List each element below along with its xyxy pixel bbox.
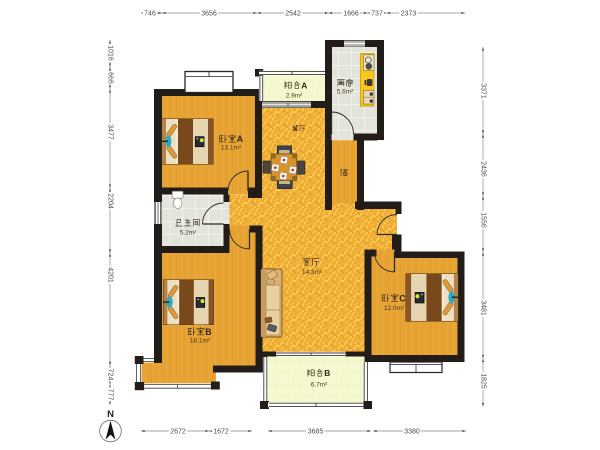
svg-text:3371: 3371 [480, 83, 487, 99]
svg-text:1672: 1672 [213, 428, 229, 435]
svg-text:5.2m²: 5.2m² [180, 230, 197, 237]
svg-text:12.0m²: 12.0m² [384, 305, 405, 312]
svg-text:737: 737 [371, 10, 383, 17]
svg-text:2672: 2672 [170, 428, 186, 435]
svg-text:2.9m²: 2.9m² [286, 93, 303, 100]
svg-text:746: 746 [144, 10, 156, 17]
svg-text:18.1m²: 18.1m² [190, 338, 211, 345]
svg-text:6.7m²: 6.7m² [311, 382, 328, 389]
svg-text:2373: 2373 [401, 10, 417, 17]
svg-text:5.6m²: 5.6m² [337, 89, 354, 96]
svg-text:777: 777 [107, 389, 114, 401]
svg-text:N: N [107, 409, 114, 420]
svg-text:1666: 1666 [343, 10, 359, 17]
svg-text:3685: 3685 [308, 428, 324, 435]
svg-text:3656: 3656 [201, 10, 217, 17]
svg-text:724: 724 [107, 369, 114, 381]
svg-text:1825: 1825 [480, 373, 487, 389]
svg-text:13.1m²: 13.1m² [221, 145, 242, 152]
svg-text:2436: 2436 [480, 161, 487, 177]
svg-text:1016: 1016 [107, 45, 114, 61]
svg-text:A: A [301, 80, 307, 90]
svg-text:14.3m²: 14.3m² [302, 269, 323, 276]
svg-text:2542: 2542 [285, 10, 301, 17]
svg-text:3481: 3481 [480, 300, 487, 316]
svg-text:1556: 1556 [480, 212, 487, 228]
svg-text:B: B [324, 368, 330, 378]
svg-text:C: C [399, 293, 406, 303]
svg-text:3380: 3380 [404, 428, 420, 435]
svg-text:666: 666 [107, 72, 114, 84]
svg-text:3477: 3477 [107, 124, 114, 140]
svg-text:A: A [237, 134, 244, 144]
svg-text:2204: 2204 [107, 193, 114, 209]
svg-text:4201: 4201 [107, 267, 114, 283]
svg-text:B: B [205, 327, 211, 337]
